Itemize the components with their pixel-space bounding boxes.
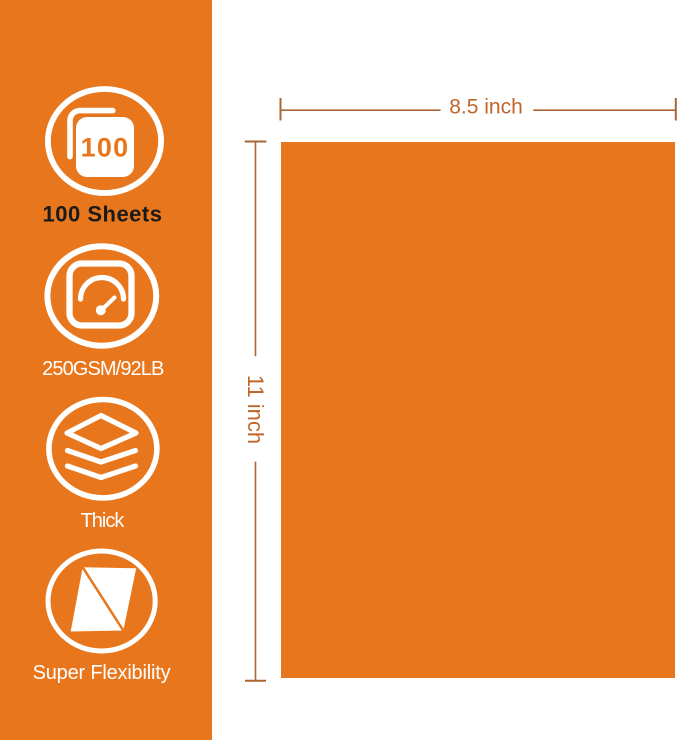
svg-text:100 Sheets: 100 Sheets [43,202,163,227]
svg-text:8.5 inch: 8.5 inch [449,96,523,119]
svg-text:Thick: Thick [81,510,126,532]
svg-text:100: 100 [81,133,130,163]
svg-text:11 inch: 11 inch [243,375,268,444]
svg-text:Super Flexibility: Super Flexibility [33,662,171,684]
svg-text:250GSM/92LB: 250GSM/92LB [42,358,164,380]
